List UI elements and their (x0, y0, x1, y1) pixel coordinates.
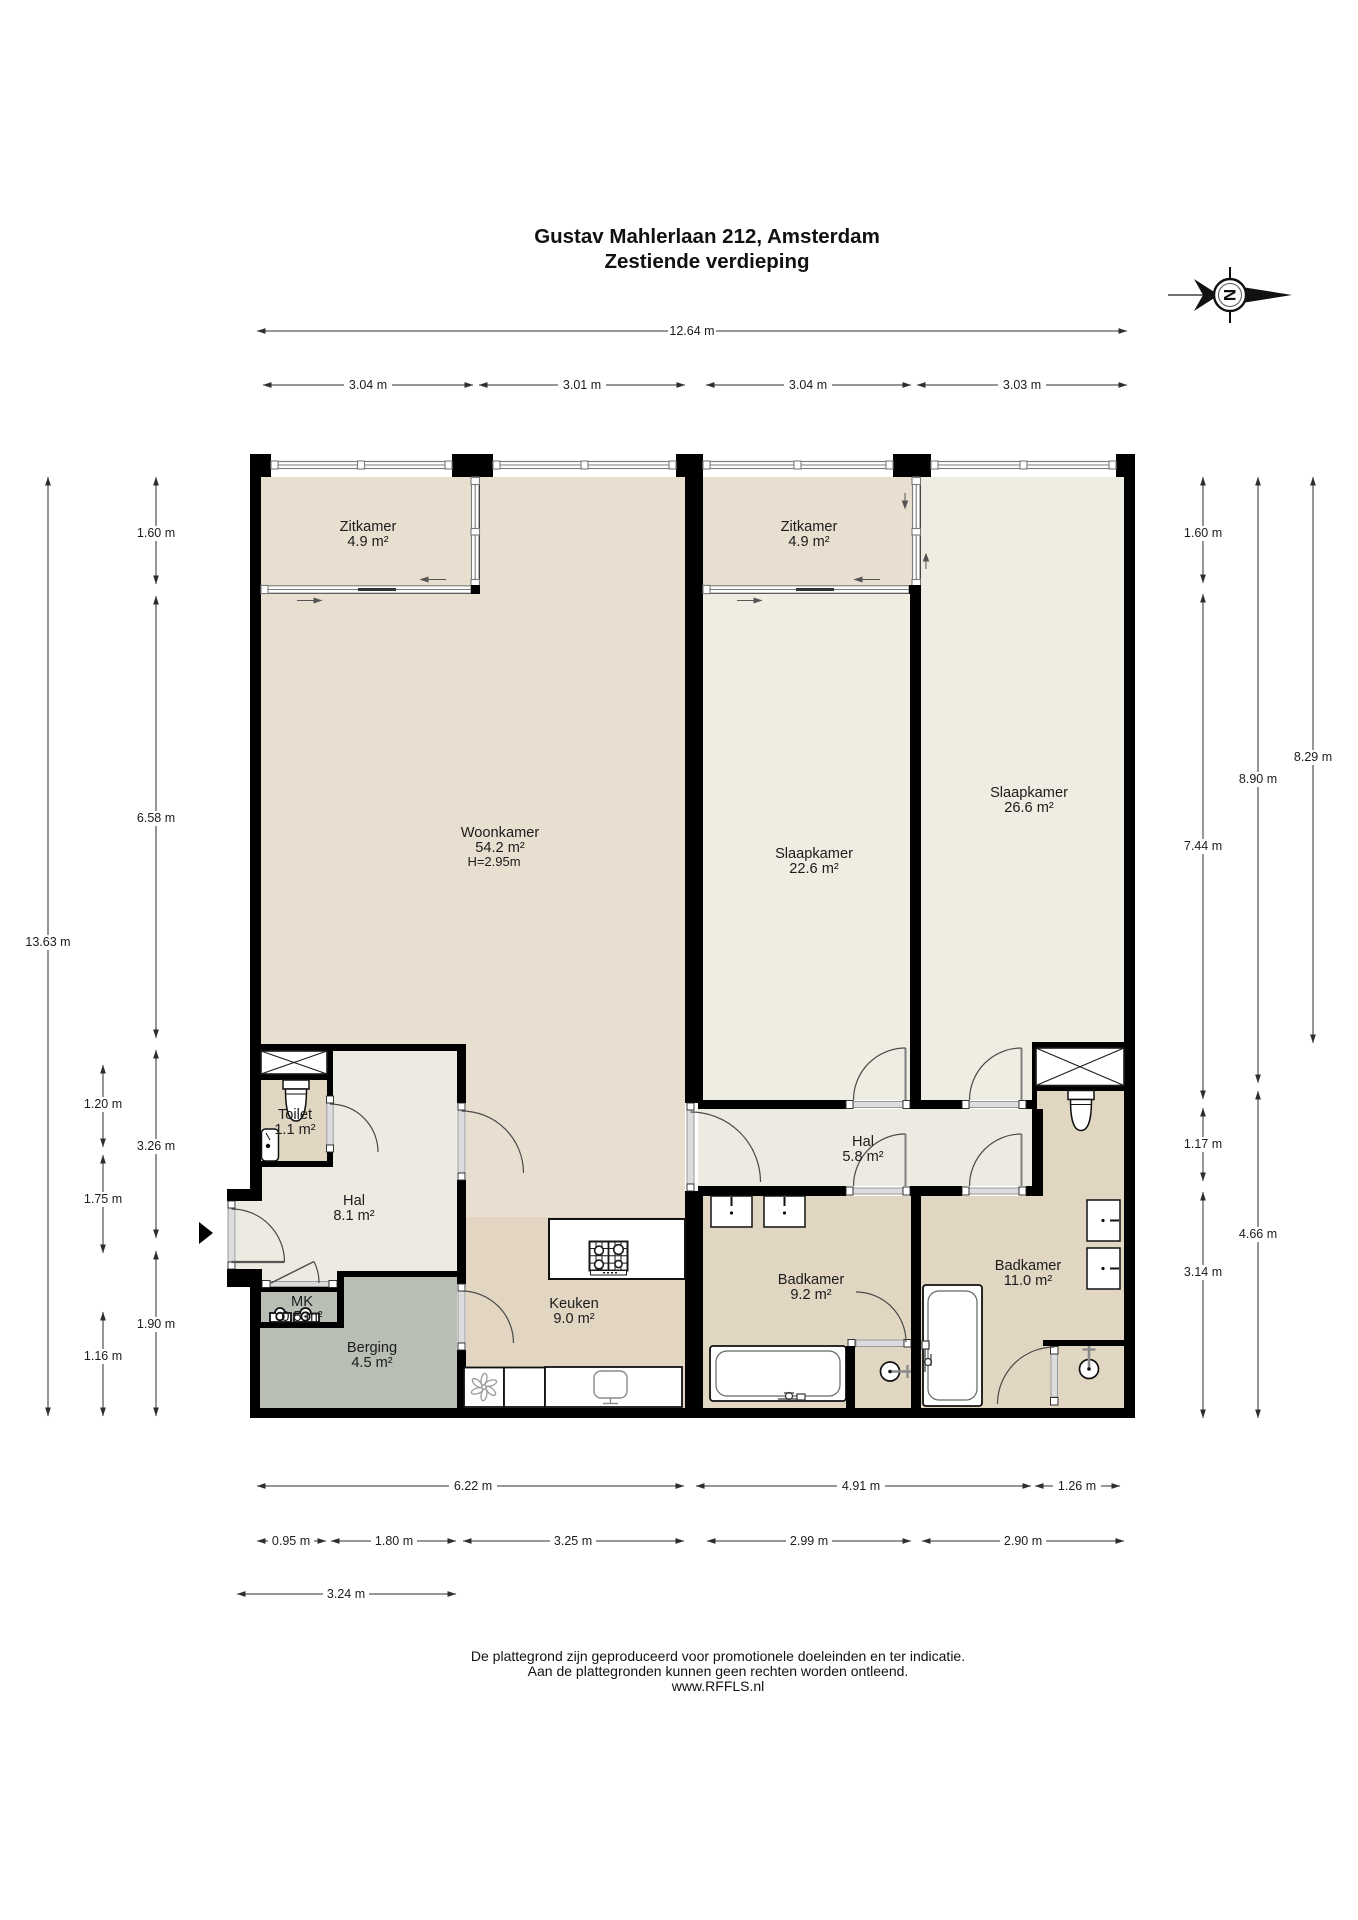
svg-text:0.5 m²: 0.5 m² (281, 1309, 322, 1325)
svg-text:22.6 m²: 22.6 m² (789, 861, 839, 877)
svg-text:13.63 m: 13.63 m (25, 935, 70, 949)
svg-text:Toilet: Toilet (278, 1107, 312, 1123)
svg-text:3.04 m: 3.04 m (349, 378, 387, 392)
svg-text:Badkamer: Badkamer (778, 1272, 845, 1288)
svg-text:4.9 m²: 4.9 m² (788, 534, 829, 550)
svg-text:Zitkamer: Zitkamer (781, 519, 838, 535)
svg-text:8.29 m: 8.29 m (1294, 750, 1332, 764)
svg-text:Hal: Hal (852, 1134, 874, 1150)
svg-text:1.60 m: 1.60 m (137, 526, 175, 540)
svg-text:Hal: Hal (343, 1193, 365, 1209)
svg-text:11.0 m²: 11.0 m² (1004, 1273, 1053, 1289)
svg-text:8.1 m²: 8.1 m² (333, 1208, 374, 1224)
svg-text:4.5 m²: 4.5 m² (351, 1355, 392, 1371)
svg-text:De plattegrond zijn geproducee: De plattegrond zijn geproduceerd voor pr… (471, 1648, 965, 1664)
svg-text:Zitkamer: Zitkamer (340, 519, 397, 535)
svg-text:9.0 m²: 9.0 m² (553, 1311, 594, 1327)
svg-text:1.26 m: 1.26 m (1058, 1479, 1096, 1493)
svg-text:6.22 m: 6.22 m (454, 1479, 492, 1493)
svg-text:5.8 m²: 5.8 m² (842, 1149, 883, 1165)
svg-text:Woonkamer: Woonkamer (461, 825, 540, 841)
svg-text:3.14 m: 3.14 m (1184, 1265, 1222, 1279)
svg-text:3.26 m: 3.26 m (137, 1139, 175, 1153)
svg-text:Zestiende verdieping: Zestiende verdieping (604, 250, 809, 273)
svg-text:12.64 m: 12.64 m (669, 324, 714, 338)
svg-text:4.9 m²: 4.9 m² (347, 534, 388, 550)
svg-text:MK: MK (291, 1294, 313, 1310)
svg-text:3.01 m: 3.01 m (563, 378, 601, 392)
svg-text:3.03 m: 3.03 m (1003, 378, 1041, 392)
svg-text:3.04 m: 3.04 m (789, 378, 827, 392)
svg-text:1.90 m: 1.90 m (137, 1317, 175, 1331)
svg-text:Badkamer: Badkamer (995, 1258, 1062, 1274)
svg-text:4.66 m: 4.66 m (1239, 1227, 1277, 1241)
svg-text:26.6 m²: 26.6 m² (1004, 800, 1054, 816)
svg-text:3.24 m: 3.24 m (327, 1587, 365, 1601)
svg-text:Berging: Berging (347, 1340, 397, 1356)
svg-text:1.17 m: 1.17 m (1184, 1137, 1222, 1151)
svg-text:1.20 m: 1.20 m (84, 1097, 122, 1111)
svg-text:H=2.95m: H=2.95m (467, 854, 520, 869)
svg-text:1.16 m: 1.16 m (84, 1349, 122, 1363)
svg-text:Slaapkamer: Slaapkamer (775, 846, 853, 862)
svg-text:Keuken: Keuken (549, 1296, 599, 1312)
svg-text:1.1 m²: 1.1 m² (274, 1122, 315, 1138)
svg-text:8.90 m: 8.90 m (1239, 772, 1277, 786)
svg-text:6.58 m: 6.58 m (137, 811, 175, 825)
svg-text:Aan de plattegronden kunnen ge: Aan de plattegronden kunnen geen rechten… (528, 1663, 909, 1679)
svg-text:0.95 m: 0.95 m (272, 1534, 310, 1548)
svg-text:9.2 m²: 9.2 m² (790, 1287, 831, 1303)
svg-text:4.91 m: 4.91 m (842, 1479, 880, 1493)
svg-text:1.80 m: 1.80 m (375, 1534, 413, 1548)
svg-text:7.44 m: 7.44 m (1184, 839, 1222, 853)
svg-text:Slaapkamer: Slaapkamer (990, 785, 1068, 801)
svg-text:2.90 m: 2.90 m (1004, 1534, 1042, 1548)
svg-text:1.75 m: 1.75 m (84, 1192, 122, 1206)
svg-text:2.99 m: 2.99 m (790, 1534, 828, 1548)
svg-text:N: N (1220, 289, 1239, 301)
svg-text:Gustav Mahlerlaan 212, Amsterd: Gustav Mahlerlaan 212, Amsterdam (534, 225, 880, 248)
svg-text:1.60 m: 1.60 m (1184, 526, 1222, 540)
svg-text:www.RFFLS.nl: www.RFFLS.nl (671, 1678, 765, 1694)
svg-text:3.25 m: 3.25 m (554, 1534, 592, 1548)
